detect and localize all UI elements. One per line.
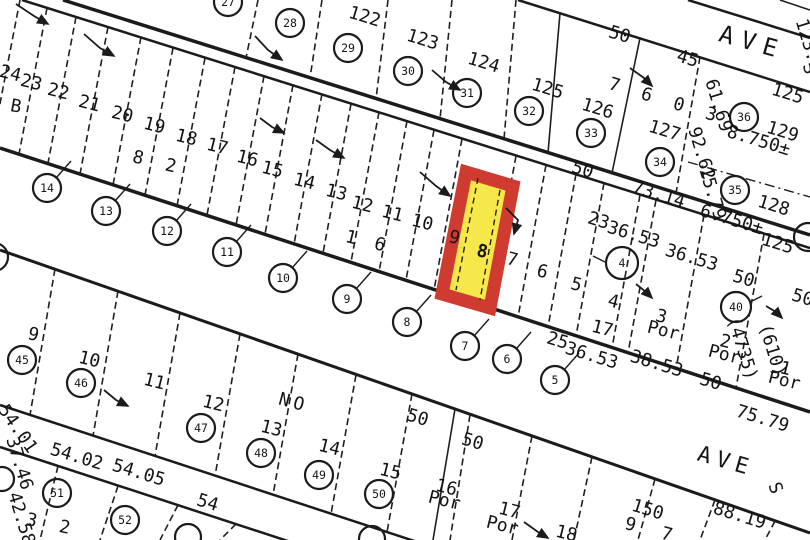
lot-label: 14	[316, 435, 342, 461]
parcel-circle-4: 4	[606, 247, 638, 279]
lot-label: 14	[291, 169, 317, 195]
plat-map-page: AVE AVE 27282930313233343635141312111098…	[0, 0, 810, 540]
svg-text:45: 45	[15, 353, 29, 367]
parcel-circle-52: 52	[111, 506, 139, 534]
lot-label: 20	[109, 102, 135, 128]
svg-text:52: 52	[118, 513, 132, 527]
parcel-circle-13: 13	[92, 184, 130, 225]
lot-label: 6	[535, 260, 551, 283]
street-label-ave-top: AVE	[716, 20, 788, 65]
dim-label: 36.53	[563, 338, 621, 374]
lot-label: 126	[579, 94, 616, 124]
svg-text:8: 8	[404, 315, 411, 329]
dim-label: 50	[730, 266, 757, 292]
lot-label: 17	[589, 316, 615, 342]
lot-label: 5	[569, 273, 585, 296]
svg-text:31: 31	[460, 86, 474, 100]
parcel-circle-partial	[175, 524, 201, 540]
parcel-circle-46: 46	[67, 369, 95, 397]
lot-label: 17	[204, 134, 230, 160]
dim-label: 50	[789, 285, 810, 311]
lot-label: 124	[465, 48, 502, 78]
tract-label: NO	[276, 389, 310, 417]
parcel-circle-6: 6	[493, 332, 531, 373]
parcel-circle-30: 30	[394, 57, 422, 85]
lot-label: 23	[18, 70, 44, 96]
svg-text:5: 5	[552, 373, 559, 387]
lot-label: 21	[76, 91, 102, 117]
parcel-circle-51: 51	[43, 479, 71, 507]
dim-label: 50	[606, 22, 633, 48]
svg-text:40: 40	[729, 300, 743, 314]
plat-map: AVE AVE 27282930313233343635141312111098…	[0, 0, 810, 540]
survey-arrows	[16, 4, 782, 538]
dim-label: 38.53	[628, 346, 686, 382]
svg-text:30: 30	[401, 64, 415, 78]
svg-text:49: 49	[312, 468, 326, 482]
block-label: B	[9, 95, 23, 118]
svg-text:11: 11	[220, 245, 234, 259]
parcel-circle-10: 10	[269, 251, 307, 292]
lot-label: 11	[141, 369, 167, 395]
parcel-circle-33: 33	[577, 119, 605, 147]
svg-text:32: 32	[522, 104, 536, 118]
lot-label: 12	[200, 391, 226, 417]
lot-label: 22	[45, 79, 71, 105]
svg-text:35: 35	[728, 183, 742, 197]
lot-label: 15	[259, 157, 285, 183]
lot-label: 13	[323, 180, 349, 206]
parcel-circle-7: 7	[451, 319, 489, 360]
svg-text:10: 10	[276, 271, 290, 285]
map-labels: 242322212019181716151413121110987654173P…	[0, 2, 810, 540]
dim-label: 45	[674, 46, 701, 72]
parcel-circle-8: 8	[393, 295, 431, 336]
lot-label: Por	[645, 317, 682, 345]
svg-text:28: 28	[283, 16, 297, 30]
svg-text:47: 47	[194, 421, 208, 435]
svg-text:13: 13	[99, 204, 113, 218]
svg-text:29: 29	[341, 41, 355, 55]
svg-text:36: 36	[737, 110, 751, 124]
lot-label: 10	[409, 210, 435, 236]
lot-label: 19	[141, 113, 167, 139]
lot-label: 13	[258, 416, 284, 442]
dim-label: 75.79	[734, 401, 792, 437]
svg-text:6: 6	[504, 352, 511, 366]
lot-label: 18	[173, 125, 199, 151]
parcel-circle-31: 31	[453, 79, 481, 107]
svg-text:51: 51	[50, 486, 64, 500]
dim-label: 50	[697, 369, 724, 395]
lot-label: 123	[404, 25, 441, 55]
lot-label: 128	[755, 191, 792, 221]
lot-label: 9	[26, 323, 42, 346]
parcel-circle-49: 49	[305, 461, 333, 489]
dim-label: 36.53	[605, 217, 663, 253]
dim-label: 125	[769, 79, 806, 109]
parcel-circle-14: 14	[33, 161, 71, 202]
parcel-circle-48: 48	[247, 439, 275, 467]
svg-text:50: 50	[372, 487, 386, 501]
parcel-circle-47: 47	[187, 414, 215, 442]
lot-label: 11	[379, 201, 405, 227]
dim-label: 36.53	[663, 240, 721, 276]
svg-text:33: 33	[584, 126, 598, 140]
tract-label: 1 6	[343, 226, 391, 257]
lot-label: 12	[349, 192, 375, 218]
parcel-circle-27: 27	[214, 0, 242, 16]
dim-label: 50	[404, 405, 431, 431]
lot-label: 18	[553, 521, 579, 540]
parcel-circle-45: 45	[8, 346, 36, 374]
svg-text:9: 9	[344, 292, 351, 306]
lot-label: 16	[234, 146, 260, 172]
street-label: S	[763, 479, 786, 496]
lot-label: 122	[346, 2, 383, 32]
parcel-circle-28: 28	[276, 9, 304, 37]
lot-label: 127	[646, 116, 683, 146]
lot-label: Por	[426, 487, 463, 515]
svg-text:46: 46	[74, 376, 88, 390]
dim-label: 125	[759, 229, 796, 259]
svg-text:7: 7	[462, 339, 469, 353]
svg-text:12: 12	[160, 224, 174, 238]
parcel-circle-34: 34	[646, 148, 674, 176]
parcel-circle-50: 50	[365, 480, 393, 508]
svg-text:14: 14	[40, 181, 54, 195]
svg-text:27: 27	[221, 0, 235, 9]
street-label-ave-bottom: AVE	[695, 442, 757, 482]
dim-label: 88.19	[711, 498, 769, 534]
svg-text:4: 4	[619, 256, 626, 270]
parcel-circle-partial	[0, 243, 8, 271]
tract-label: 8 2	[130, 146, 184, 179]
svg-text:48: 48	[254, 446, 268, 460]
dim-label: 50	[459, 429, 486, 455]
parcel-circle-12: 12	[153, 204, 191, 245]
svg-text:34: 34	[653, 155, 667, 169]
parcel-circle-32: 32	[515, 97, 543, 125]
parcel-circle-11: 11	[213, 225, 251, 266]
dim-label: 54.02	[48, 439, 106, 475]
parcel-circle-9: 9	[333, 272, 371, 313]
parcel-circle-29: 29	[334, 34, 362, 62]
